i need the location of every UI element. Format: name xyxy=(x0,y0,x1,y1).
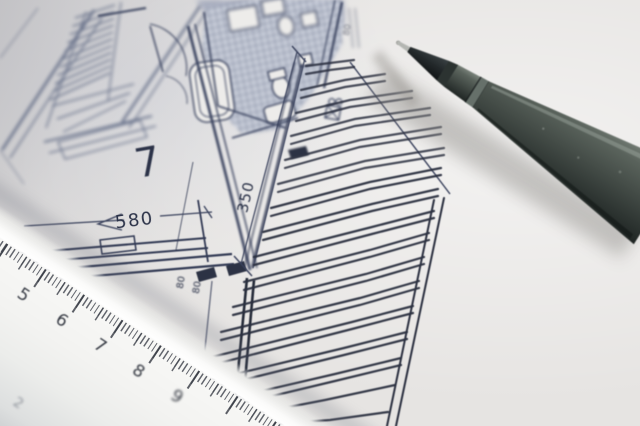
staircase xyxy=(0,2,206,184)
door-leaf xyxy=(150,26,163,72)
deck-fascia-line xyxy=(396,198,444,426)
wall-poche xyxy=(226,261,247,276)
photo-of-blueprint-scene: 7 580 350 80 80 80 5 6 7 8 9 2 xyxy=(0,0,640,426)
dimension-label-80a: 80 xyxy=(175,275,188,289)
dimension-label-80-top: 80 xyxy=(342,23,354,36)
deck-fascia-line xyxy=(387,200,434,426)
wall-poche xyxy=(196,267,217,282)
dimension-label-80b: 80 xyxy=(191,280,204,294)
stair-steps xyxy=(50,5,115,100)
